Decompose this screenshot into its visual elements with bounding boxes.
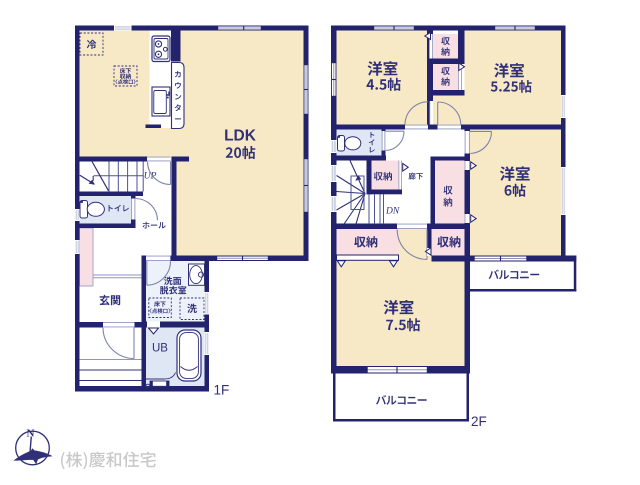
- svg-text:UB: UB: [152, 343, 168, 355]
- svg-text:DN: DN: [385, 207, 400, 217]
- svg-text:2F: 2F: [471, 414, 487, 429]
- svg-text:1F: 1F: [214, 383, 230, 398]
- svg-text:LDK: LDK: [224, 127, 257, 144]
